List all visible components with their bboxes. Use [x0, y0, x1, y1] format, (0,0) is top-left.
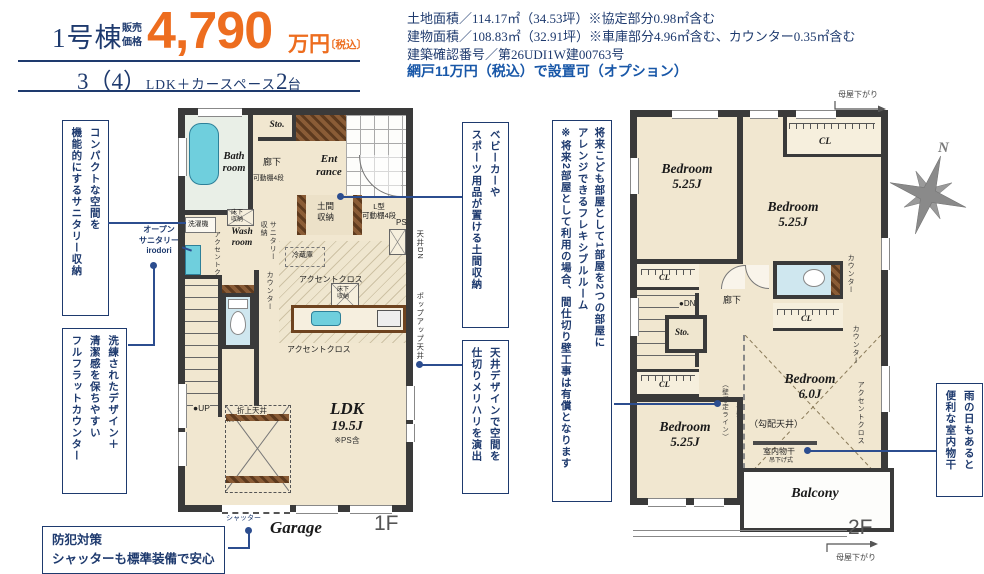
shutter-label: シャッター: [226, 515, 261, 524]
window: [198, 108, 242, 117]
accent-cloth-counter-label: アクセントクロス: [287, 345, 351, 355]
header-rule-bottom: [18, 90, 360, 92]
window: [648, 498, 686, 507]
flyer-page: 1号棟 販売 価格 4,790 万円 〔税込〕 3（4）LDK＋カースペース2台…: [0, 0, 984, 574]
bedroom-1-label-group: Bedroom 5.25J: [639, 161, 735, 191]
bedroom-door-arc: [721, 265, 745, 289]
floor-1f-label: 1F: [374, 512, 399, 536]
underfloor-storage-1-label: 床下 収納: [231, 210, 243, 223]
laundry-pole: [753, 441, 817, 445]
sanitary-storage-label: サニタリー 収納: [259, 221, 277, 261]
ps-label: PS: [396, 218, 407, 228]
price-value: 4,790: [147, 1, 272, 61]
accent-cloth-2f-label: アクセントクロス: [856, 381, 865, 445]
bedroom-2-label: Bedroom: [743, 199, 843, 215]
counter-1f-label: カウンター: [265, 271, 274, 311]
ldk-size-label: 19.5J: [309, 419, 385, 435]
lower-roof-line: [633, 530, 847, 537]
callout-line-counter-v: [153, 266, 155, 346]
entrance-label: Ent rance: [307, 153, 351, 178]
garage-label: Garage: [270, 518, 322, 538]
indoor-laundry-label: 室内物干: [763, 447, 795, 457]
closet-left-2-label: CL: [659, 380, 670, 390]
callout-line-security-h: [228, 547, 250, 549]
toilet-1f-shelf: [222, 285, 254, 293]
bedroom-3-label: Bedroom: [765, 371, 855, 387]
price-caption: 販売 価格: [122, 22, 142, 49]
moya-sagari-bottom-arrow: [826, 541, 882, 553]
storage-1f-label: Sto.: [261, 120, 293, 131]
window: [672, 110, 718, 119]
window: [796, 110, 836, 119]
bedroom-door-arc: [745, 265, 769, 289]
toilet-2f-bowl: [803, 269, 825, 287]
counter-bedroom-label: カウンター: [851, 325, 860, 365]
building-area-line: 建物面積／108.83㎡（32.91坪）※車庫部分4.96㎡含む、カウンター0.…: [407, 26, 856, 45]
bedroom-2-size: 5.25J: [743, 215, 843, 230]
moya-sagari-bottom-label: 母屋下がり: [836, 553, 876, 563]
callout-dot-ceiling: [416, 361, 423, 368]
floor-2f-label: 2F: [848, 516, 873, 540]
bedroom-2-label-group: Bedroom 5.25J: [743, 199, 843, 229]
callout-line-sanitary: [108, 222, 186, 224]
callout-dot-shutter: [245, 527, 252, 534]
window: [630, 158, 639, 194]
stove: [377, 310, 401, 327]
bathroom-label: Bath room: [215, 151, 253, 175]
compass-north-label: N: [937, 140, 950, 156]
washroom-label: Wash room: [221, 227, 263, 249]
closet-right-label: CL: [801, 314, 812, 324]
popup-ceiling-label: ポップアップ天井: [415, 292, 425, 360]
sloped-ceiling-label: （勾配天井）: [749, 419, 803, 430]
movable-shelf-label: 可動棚4段: [253, 175, 284, 183]
bedroom-3-label-group: Bedroom 6.0J: [765, 371, 855, 401]
refrigerator-label: 冷蔵庫: [292, 252, 313, 261]
callout-ceiling-design: 天井デザインで空間を 仕切りメリハリを演出: [462, 340, 509, 494]
ldk-note-label: ※PS含: [309, 435, 385, 446]
price-tax-note: 〔税込〕: [325, 37, 367, 52]
window: [178, 138, 187, 176]
doma-shelf-right: [353, 195, 362, 235]
callout-dot-flexible: [714, 400, 721, 407]
window: [881, 366, 890, 412]
screen-option-line: 網戸11万円（税込）で設置可（オプション）: [407, 61, 688, 81]
toilet-1f-tank: [228, 299, 248, 309]
window: [881, 238, 890, 270]
callout-flexible-room: 将来こども部屋として1部屋を2つの部屋に アレンジできるフレキシブルルーム ※将…: [552, 120, 612, 502]
floor-plan-2f: Bedroom 5.25J Bedroom 5.25J CL CL ●DN St…: [630, 110, 888, 505]
ldk-label-group: LDK 19.5J ※PS含: [309, 399, 385, 446]
window: [178, 384, 187, 428]
callout-dot-laundry: [804, 447, 811, 454]
washing-machine-label: 洗濯機: [188, 221, 208, 229]
bedroom-4-label-group: Bedroom 5.25J: [637, 419, 733, 449]
callout-shutter-security: 防犯対策 シャッターも標準装備で安心: [42, 526, 225, 574]
callout-dot-counter: [150, 262, 157, 269]
raised-ceiling-beam-bottom: [226, 476, 289, 483]
price-unit: 万円: [288, 28, 330, 58]
doma-storage-label: 土間 収納: [317, 201, 334, 222]
counter-toilet-label: カウンター: [846, 254, 855, 294]
callout-indoor-laundry: 雨の日もあると 便利な室内物干: [936, 383, 983, 497]
wall-bedrooms: [737, 117, 743, 259]
raised-ceiling-label: 折上天井: [237, 406, 267, 415]
window: [178, 432, 187, 466]
closet-hanger: [789, 123, 875, 129]
toilet-2f-counter: [831, 265, 840, 295]
stairs-1f: [185, 275, 222, 417]
bedroom-3-size: 6.0J: [765, 387, 855, 402]
window: [630, 298, 639, 336]
underfloor-storage-2-label: 床下 収納: [337, 287, 349, 300]
callout-line-security-v: [248, 532, 250, 549]
garage-shutter-opening: [222, 505, 290, 514]
stairs-up-label: ●UP: [193, 403, 210, 414]
callout-line-laundry: [808, 450, 936, 452]
balcony-label: Balcony: [770, 486, 860, 502]
wall-bed4-top: [637, 397, 743, 402]
hanging-type-label: 吊下げ式: [769, 458, 793, 466]
ldk-label: LDK: [309, 399, 385, 419]
stairs-dn-label: ●DN: [679, 299, 695, 309]
entrance-closet: [296, 115, 346, 141]
moya-sagari-top-arrow: [834, 100, 890, 112]
hallway-1f-label: 廊下: [263, 157, 281, 168]
bedroom-4-size: 5.25J: [637, 435, 733, 450]
callout-line-counter-h: [128, 344, 155, 346]
window: [750, 110, 778, 119]
callout-line-flexible: [614, 403, 718, 405]
moya-sagari-top-label: 母屋下がり: [838, 90, 878, 100]
closet-top-right-label: CL: [819, 137, 831, 148]
callout-line-ceiling: [420, 364, 462, 366]
pipe-shaft: [389, 229, 406, 255]
callout-line-doma: [341, 196, 462, 198]
callout-dot-doma: [337, 193, 344, 200]
window: [406, 424, 415, 442]
callout-flat-counter: 洗練されたデザイン＋ 清潔感を保ちやすい フルフラットカウンター: [62, 328, 127, 494]
raised-ceiling-box: [225, 405, 291, 493]
floor-plan-1f: Bath room 洗濯機 Sto. 廊下 可動棚4段 Ent rance 土間…: [178, 108, 413, 512]
callout-doma-storage: ベビーカーや スポーツ用品が置ける土間収納: [462, 122, 509, 328]
ceiling-down-label: 天井DN: [415, 230, 425, 260]
storage-2f-label: Sto.: [675, 327, 689, 337]
doma-shelf-left: [297, 195, 306, 235]
window: [694, 498, 724, 507]
window: [296, 505, 338, 514]
wall-hall-ldk: [254, 270, 259, 417]
compass-rose: N: [882, 136, 974, 240]
kitchen-sink: [311, 311, 341, 326]
window: [406, 386, 415, 420]
bedroom-1-size: 5.25J: [639, 177, 735, 192]
l-shelf-label: L型 可動棚4段: [362, 202, 396, 221]
toilet-1f-bowl: [230, 311, 246, 335]
bedroom-1-label: Bedroom: [639, 161, 735, 177]
closet-left-1-label: CL: [659, 273, 670, 283]
land-area-line: 土地面積／114.17㎡（34.53坪）※協定部分0.98㎡含む: [407, 8, 715, 27]
building-number: 1号棟: [52, 16, 123, 55]
bedroom-4-label: Bedroom: [637, 419, 733, 435]
hallway-2f-label: 廊下: [723, 295, 741, 306]
callout-sanitary-storage: コンパクトな空間を 機能的にするサニタリー収納: [62, 120, 109, 316]
